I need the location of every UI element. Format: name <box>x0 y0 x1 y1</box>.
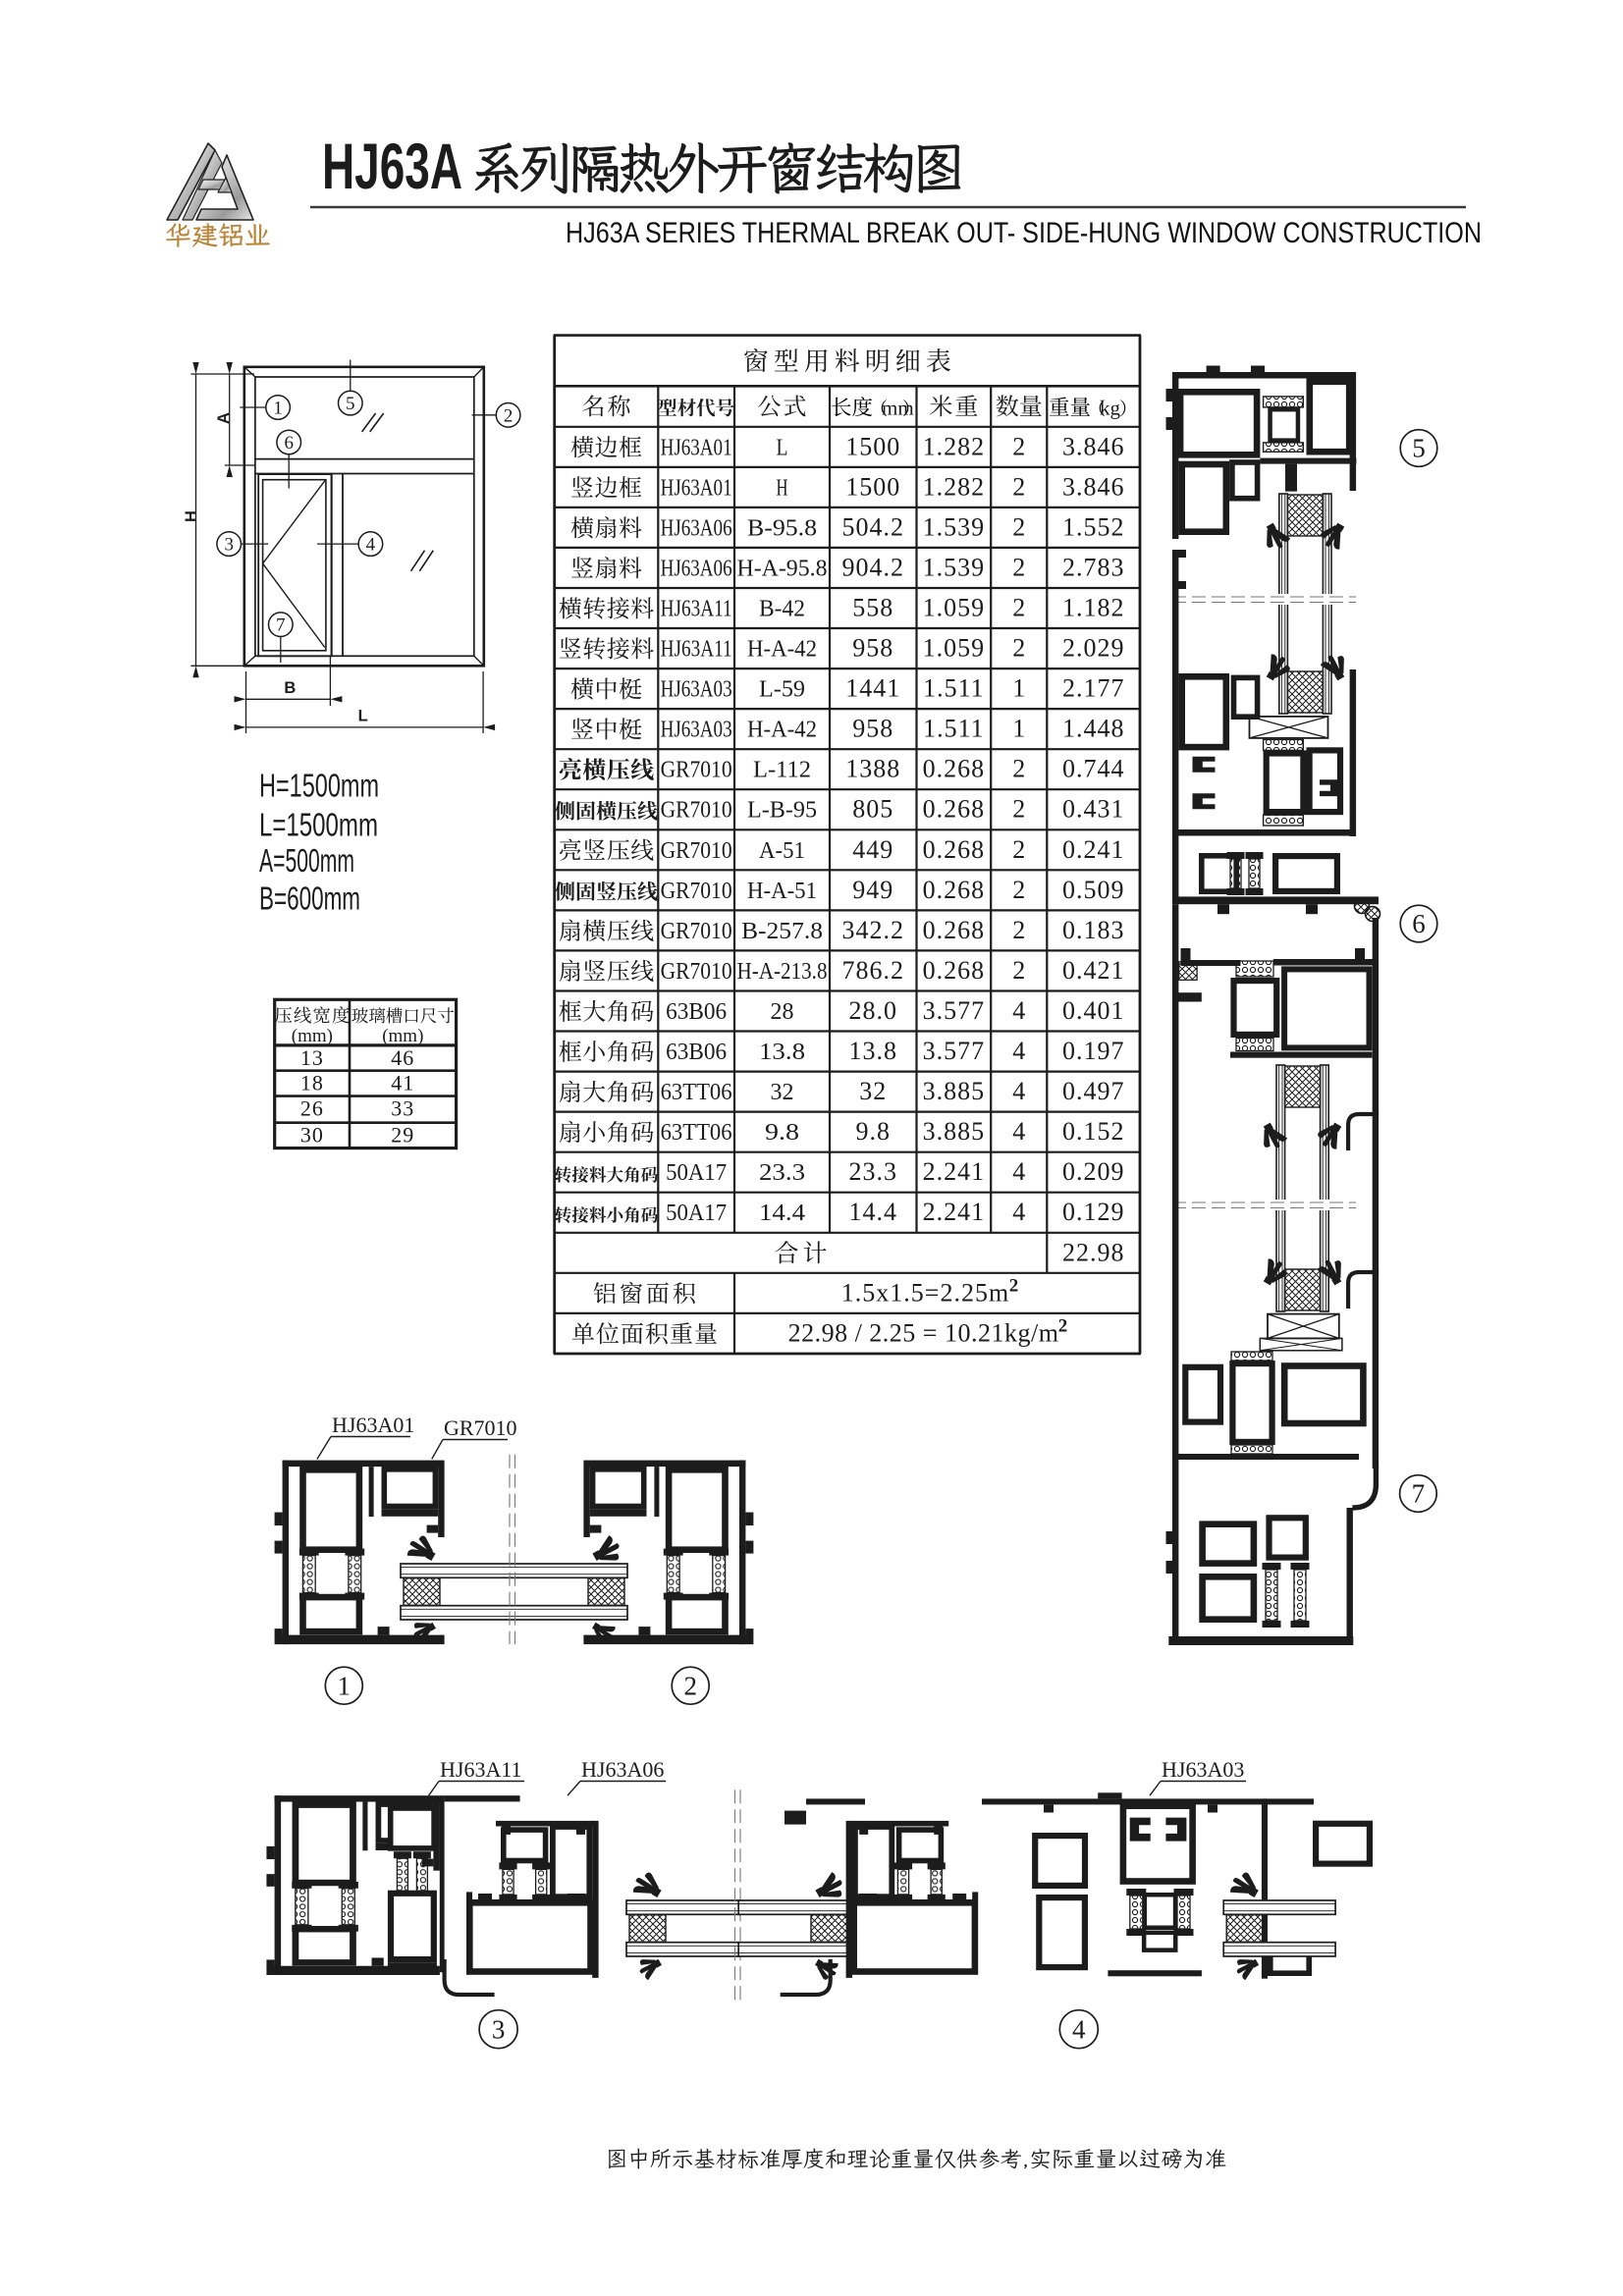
svg-text:L-B-95: L-B-95 <box>747 797 817 824</box>
svg-text:H-A-42: H-A-42 <box>747 717 817 743</box>
svg-text:3.885: 3.885 <box>923 1117 986 1146</box>
svg-text:5: 5 <box>1412 434 1426 463</box>
svg-text:4: 4 <box>366 535 376 556</box>
svg-text:342.2: 342.2 <box>841 916 904 944</box>
svg-text:H-A-51: H-A-51 <box>747 878 817 904</box>
svg-text:1.059: 1.059 <box>923 634 986 663</box>
svg-text:3.885: 3.885 <box>923 1077 986 1105</box>
svg-text:23.3: 23.3 <box>848 1157 897 1186</box>
svg-text:33: 33 <box>391 1096 414 1121</box>
svg-text:14.4: 14.4 <box>848 1198 897 1226</box>
svg-text:1500: 1500 <box>845 472 900 501</box>
svg-text:7: 7 <box>1412 1479 1426 1509</box>
svg-text:HJ63A03: HJ63A03 <box>661 676 732 703</box>
svg-text:HJ63A01: HJ63A01 <box>661 474 732 501</box>
svg-text:13.8: 13.8 <box>759 1039 805 1065</box>
svg-text:2: 2 <box>1012 916 1025 944</box>
svg-text:2: 2 <box>1012 634 1025 663</box>
svg-text:0.268: 0.268 <box>923 835 986 864</box>
svg-text:HJ63A03: HJ63A03 <box>1162 1757 1244 1782</box>
svg-text:13.8: 13.8 <box>848 1037 897 1065</box>
svg-text:3: 3 <box>224 535 234 556</box>
svg-text:805: 805 <box>852 795 893 824</box>
svg-text:0.268: 0.268 <box>923 795 986 824</box>
svg-text:3.577: 3.577 <box>923 1037 986 1065</box>
svg-text:2.783: 2.783 <box>1062 553 1125 581</box>
svg-text:HJ63A06: HJ63A06 <box>661 555 732 581</box>
svg-text:949: 949 <box>852 876 893 904</box>
svg-text:2: 2 <box>1012 512 1025 541</box>
svg-text:22.98: 22.98 <box>1062 1238 1125 1266</box>
svg-text:786.2: 786.2 <box>841 956 904 985</box>
svg-text:958: 958 <box>852 715 893 743</box>
svg-text:2.241: 2.241 <box>923 1157 986 1186</box>
svg-text:B=600mm: B=600mm <box>259 881 360 917</box>
svg-text:0.209: 0.209 <box>1062 1157 1125 1186</box>
svg-text:1: 1 <box>338 1671 352 1700</box>
svg-text:4: 4 <box>1072 2014 1086 2044</box>
svg-text:GR7010: GR7010 <box>661 878 732 904</box>
svg-text:L: L <box>358 708 368 725</box>
svg-text:(mm): (mm) <box>382 1026 423 1046</box>
svg-text:7: 7 <box>276 615 286 636</box>
svg-text:2: 2 <box>1012 795 1025 824</box>
svg-text:0.268: 0.268 <box>923 916 986 944</box>
svg-text:32: 32 <box>859 1077 887 1105</box>
svg-text:HJ63A: HJ63A <box>322 130 462 202</box>
svg-text:63B06: 63B06 <box>666 998 727 1025</box>
svg-text:4: 4 <box>1012 1077 1025 1105</box>
svg-text:3.577: 3.577 <box>923 996 986 1025</box>
svg-text:1.448: 1.448 <box>1062 715 1125 743</box>
svg-text:HJ63A06: HJ63A06 <box>581 1757 664 1782</box>
svg-text:2: 2 <box>1012 956 1025 985</box>
svg-text:1.282: 1.282 <box>923 472 986 501</box>
svg-text:B-42: B-42 <box>759 596 805 622</box>
svg-text:H: H <box>183 510 200 522</box>
svg-text:1: 1 <box>273 399 283 419</box>
svg-text:2: 2 <box>1012 432 1025 460</box>
svg-text:GR7010: GR7010 <box>661 918 732 944</box>
svg-text:4: 4 <box>1012 1157 1025 1186</box>
svg-text:2.029: 2.029 <box>1062 634 1125 663</box>
svg-text:6: 6 <box>1412 909 1426 938</box>
svg-text:0.497: 0.497 <box>1062 1077 1125 1105</box>
svg-text:26: 26 <box>300 1096 324 1121</box>
svg-text:14.4: 14.4 <box>759 1200 805 1226</box>
svg-text:HJ63A11: HJ63A11 <box>661 596 732 622</box>
svg-text:50A17: 50A17 <box>666 1200 727 1226</box>
svg-text:HJ63A03: HJ63A03 <box>661 717 732 743</box>
svg-text:2: 2 <box>1012 755 1025 783</box>
svg-text:1.552: 1.552 <box>1062 512 1125 541</box>
svg-text:L-112: L-112 <box>753 757 811 783</box>
svg-text:2: 2 <box>1012 835 1025 864</box>
svg-text:9.8: 9.8 <box>765 1119 799 1146</box>
svg-text:A: A <box>215 412 233 424</box>
svg-text:2: 2 <box>1009 1275 1019 1296</box>
svg-text:(mm): (mm) <box>292 1026 333 1046</box>
svg-text:29: 29 <box>391 1123 414 1148</box>
svg-text:0.268: 0.268 <box>923 956 986 985</box>
svg-text:3.846: 3.846 <box>1062 472 1125 501</box>
svg-text:H: H <box>777 474 788 501</box>
svg-text:904.2: 904.2 <box>841 553 904 581</box>
svg-text:2: 2 <box>1012 594 1025 622</box>
svg-text:0.241: 0.241 <box>1062 835 1125 864</box>
svg-text:63B06: 63B06 <box>666 1039 727 1065</box>
svg-text:1.5x1.5=2.25m: 1.5x1.5=2.25m <box>841 1278 1009 1307</box>
svg-text:3.846: 3.846 <box>1062 432 1125 460</box>
svg-text:GR7010: GR7010 <box>661 797 732 824</box>
svg-text:3: 3 <box>492 2014 506 2044</box>
svg-text:2: 2 <box>1012 553 1025 581</box>
svg-text:4: 4 <box>1012 1117 1025 1146</box>
svg-text:1.511: 1.511 <box>923 674 985 703</box>
svg-text:28: 28 <box>771 998 794 1025</box>
svg-text:958: 958 <box>852 634 893 663</box>
svg-text:B: B <box>284 679 296 697</box>
svg-text:2: 2 <box>1058 1315 1068 1336</box>
svg-text:B-257.8: B-257.8 <box>741 918 823 944</box>
svg-text:558: 558 <box>852 594 893 622</box>
svg-text:HJ63A06: HJ63A06 <box>661 514 732 541</box>
svg-text:0.197: 0.197 <box>1062 1037 1125 1065</box>
svg-text:32: 32 <box>771 1079 794 1105</box>
svg-text:1.539: 1.539 <box>923 512 986 541</box>
svg-text:1.182: 1.182 <box>1062 594 1125 622</box>
svg-text:23.3: 23.3 <box>759 1159 805 1186</box>
svg-text:1.059: 1.059 <box>923 594 986 622</box>
svg-text:2.177: 2.177 <box>1062 674 1125 703</box>
svg-text:46: 46 <box>391 1045 414 1070</box>
svg-text:1388: 1388 <box>845 755 900 783</box>
svg-text:30: 30 <box>300 1123 324 1148</box>
svg-text:1: 1 <box>1012 715 1025 743</box>
svg-text:2: 2 <box>1012 876 1025 904</box>
svg-text:0.509: 0.509 <box>1062 876 1125 904</box>
svg-text:13: 13 <box>300 1045 324 1070</box>
svg-text:22.98 / 2.25 = 10.21kg/m: 22.98 / 2.25 = 10.21kg/m <box>788 1318 1059 1347</box>
svg-text:6: 6 <box>284 433 294 454</box>
svg-text:1441: 1441 <box>845 674 900 703</box>
svg-text:1.539: 1.539 <box>923 553 986 581</box>
svg-text:H=1500mm: H=1500mm <box>259 768 379 804</box>
svg-text:mm: mm <box>882 397 914 420</box>
svg-text:0.268: 0.268 <box>923 755 986 783</box>
svg-text:1: 1 <box>1012 674 1025 703</box>
svg-text:0.431: 0.431 <box>1062 795 1125 824</box>
svg-text:504.2: 504.2 <box>841 512 904 541</box>
svg-text:5: 5 <box>346 394 355 414</box>
svg-text:L: L <box>777 434 788 460</box>
svg-text:0.183: 0.183 <box>1062 916 1125 944</box>
svg-text:H-A-213.8: H-A-213.8 <box>737 958 828 985</box>
svg-text:GR7010: GR7010 <box>661 757 732 783</box>
svg-text:449: 449 <box>852 835 893 864</box>
svg-text:1.511: 1.511 <box>923 715 985 743</box>
svg-text:63TT06: 63TT06 <box>661 1119 732 1146</box>
svg-text:B-95.8: B-95.8 <box>747 514 817 541</box>
svg-text:0.401: 0.401 <box>1062 996 1125 1025</box>
svg-text:28.0: 28.0 <box>848 996 897 1025</box>
svg-text:4: 4 <box>1012 1198 1025 1226</box>
svg-text:4: 4 <box>1012 996 1025 1025</box>
svg-text:A-51: A-51 <box>759 837 805 864</box>
svg-text:0.129: 0.129 <box>1062 1198 1125 1226</box>
svg-text:GR7010: GR7010 <box>661 958 732 985</box>
svg-text:0.421: 0.421 <box>1062 956 1125 985</box>
svg-text:41: 41 <box>391 1071 414 1095</box>
svg-text:GR7010: GR7010 <box>444 1415 517 1440</box>
svg-text:HJ63A11: HJ63A11 <box>661 636 732 663</box>
svg-text:4: 4 <box>1012 1037 1025 1065</box>
svg-text:H-A-95.8: H-A-95.8 <box>737 555 828 581</box>
svg-text:0.268: 0.268 <box>923 876 986 904</box>
svg-text:2: 2 <box>504 405 514 426</box>
svg-text:HJ63A SERIES THERMAL BREAK OUT: HJ63A SERIES THERMAL BREAK OUT- SIDE-HUN… <box>566 217 1482 249</box>
svg-text:9.8: 9.8 <box>855 1117 891 1146</box>
svg-text:HJ63A11: HJ63A11 <box>440 1757 522 1782</box>
svg-text:GR7010: GR7010 <box>661 837 732 864</box>
svg-text:1500: 1500 <box>845 432 900 460</box>
svg-text:2.241: 2.241 <box>923 1198 986 1226</box>
svg-text:HJ63A01: HJ63A01 <box>661 434 732 460</box>
svg-text:2: 2 <box>1012 472 1025 501</box>
svg-text:0.152: 0.152 <box>1062 1117 1125 1146</box>
svg-text:kg: kg <box>1100 397 1121 420</box>
svg-text:18: 18 <box>300 1071 324 1095</box>
svg-text:A=500mm: A=500mm <box>259 842 354 879</box>
svg-text:63TT06: 63TT06 <box>661 1079 732 1105</box>
svg-text:H-A-42: H-A-42 <box>747 636 817 663</box>
svg-text:2: 2 <box>683 1671 697 1700</box>
svg-text:50A17: 50A17 <box>666 1159 727 1186</box>
svg-text:HJ63A01: HJ63A01 <box>332 1413 414 1437</box>
svg-text:1.282: 1.282 <box>923 432 986 460</box>
svg-text:0.744: 0.744 <box>1062 755 1125 783</box>
svg-text:L-59: L-59 <box>759 676 805 703</box>
svg-text:L=1500mm: L=1500mm <box>259 807 378 843</box>
